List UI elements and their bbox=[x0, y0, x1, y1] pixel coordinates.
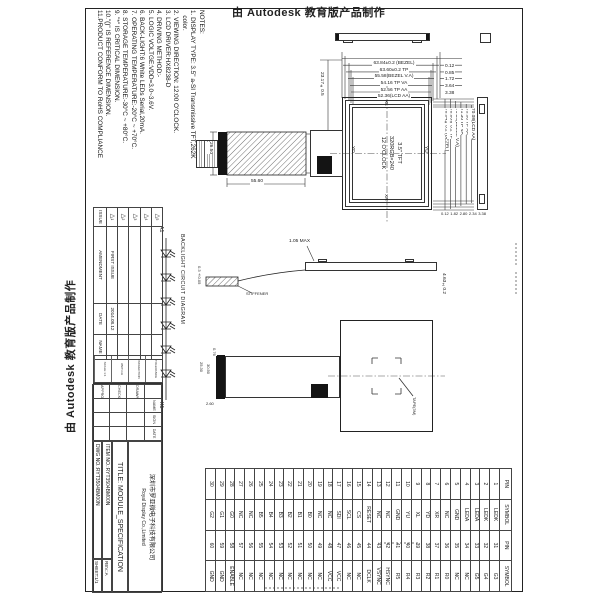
pin-table-cell: 32 bbox=[480, 530, 490, 561]
panel-clock-label: 12 O'CLOCK bbox=[379, 131, 387, 175]
top-edge-tab-right bbox=[412, 40, 422, 43]
h-dim-label: 52.36(LCD AA) bbox=[348, 84, 440, 91]
pin-table-row: 30G260GND bbox=[206, 469, 216, 592]
fpc-height-dim: 26.50 bbox=[206, 142, 213, 154]
rear-dim-3050: 30.50 bbox=[205, 364, 211, 374]
pin-table-row: 27NC57NC bbox=[235, 469, 245, 592]
h-dim-label: 63.60±0.2 TP bbox=[348, 58, 440, 65]
pin-table-cell: 26 bbox=[245, 469, 255, 500]
pin-table-row: 14RESET44DCLK bbox=[362, 469, 372, 592]
pin-table-row: 19NC49NC bbox=[313, 469, 323, 592]
width-dimension-labels: 63.84±0.2 (BEZEL)63.60±0.2 TP55.58(BEZEL… bbox=[348, 51, 440, 91]
pin-assignment-table: PINSYMBOLPINSYMBOL1LEDK31G32LEDK32G43LED… bbox=[205, 468, 512, 592]
pin-table-row: 12NC42HSYNC bbox=[382, 469, 392, 592]
amendment-header-cell: DATE bbox=[94, 304, 107, 335]
note-line: 2. VIEWING DIRECTION: 12:00 O'CLOCK. bbox=[171, 10, 180, 228]
pin-table-cell: 57 bbox=[235, 530, 245, 561]
pin-table-cell: LEDA bbox=[460, 499, 470, 530]
pin-table-cell: 21 bbox=[294, 469, 304, 500]
led-symbol bbox=[161, 370, 175, 377]
pin-table-cell: R0 bbox=[441, 561, 451, 592]
pin-table-cell: NC bbox=[372, 499, 382, 530]
pin-table-cell: 52 bbox=[284, 530, 294, 561]
pin-table-cell: 18 bbox=[323, 469, 333, 500]
note-line: color. bbox=[180, 10, 189, 228]
top-edge-tab-left bbox=[343, 40, 353, 43]
width-offset-labels: 0.120.851.723.643.38 bbox=[444, 54, 464, 87]
pin-table-cell: 53 bbox=[274, 530, 284, 561]
note-line: 5. LOGIC VOLTGE:VDD=3.0~3.6V. bbox=[146, 10, 155, 228]
micro-cell: TOLERANCE bbox=[145, 356, 162, 382]
sig-empty-cell bbox=[93, 413, 110, 427]
pin-table-cell: 9 bbox=[411, 469, 421, 500]
pin-table-cell: NC bbox=[441, 499, 451, 530]
note-line: 9. "*" IS CRITICAL DIMENSION. bbox=[112, 10, 121, 228]
pin-table-cell: 58 bbox=[225, 530, 235, 561]
pin-table-cell: NC bbox=[264, 561, 274, 592]
amendment-cell bbox=[118, 227, 129, 304]
item-no-value: RYT3504BM00N bbox=[104, 468, 110, 506]
touch-label-xr: XR bbox=[383, 194, 388, 201]
pin-table-header-cell: PIN bbox=[500, 530, 512, 561]
pin-table-cell: NC bbox=[353, 561, 363, 592]
dwg-no-label: DWG NO.: bbox=[94, 444, 100, 468]
note-line: 11.PRODUCT CONFORM TO RoHS COMPLIANCE bbox=[95, 10, 104, 228]
h-dim-label: 52.56 TP AA bbox=[348, 78, 440, 85]
h-offset-label: 3.64 bbox=[444, 74, 464, 81]
top-edge-endcap-right bbox=[426, 34, 429, 40]
pin-table-cell: SCL bbox=[343, 499, 353, 530]
amendment-cell: △3 bbox=[129, 208, 140, 227]
pin-table-row: 24B454NC bbox=[264, 469, 274, 592]
led-symbol bbox=[161, 298, 175, 305]
pin-table-cell: 24 bbox=[264, 469, 274, 500]
pin-table-cell: 12 bbox=[382, 469, 392, 500]
pin-table-cell: B4 bbox=[264, 499, 274, 530]
pin-table-cell: HSYNC bbox=[382, 561, 392, 592]
pin-table-cell: NC bbox=[294, 561, 304, 592]
pin-table-header-cell: SYMBOL bbox=[500, 561, 512, 592]
signature-table: NAMESIGNDATEDRAWNCHECKEDAPPROVED bbox=[92, 384, 162, 441]
pin-table-cell: NC bbox=[460, 561, 470, 592]
pin-table-cell: GND bbox=[215, 561, 225, 592]
rear-dim-076: 0.76 bbox=[211, 348, 217, 356]
company-name-en: Royal Display Co.,Limited bbox=[139, 442, 146, 592]
pin-table-cell: R4 bbox=[402, 561, 412, 592]
right-edge-slot-top bbox=[479, 104, 485, 114]
led-symbol bbox=[161, 250, 175, 257]
pin-table-cell: B0 bbox=[304, 499, 314, 530]
pin-table-cell: G5 bbox=[470, 561, 480, 592]
pin-table-cell: 7 bbox=[431, 469, 441, 500]
pin-table-cell: 27 bbox=[235, 469, 245, 500]
v-offset-label: 2.34 bbox=[469, 212, 477, 216]
v-offset-label: 0.12 bbox=[441, 212, 449, 216]
pin-table-cell: G2 bbox=[206, 499, 216, 530]
sig-row: CHECKED bbox=[110, 385, 127, 441]
pin-table-cell: YD bbox=[421, 499, 431, 530]
pin-table-row: 22B252NC bbox=[284, 469, 294, 592]
pin-table-cell: B3 bbox=[274, 499, 284, 530]
pin-table-cell: 34 bbox=[460, 530, 470, 561]
pin-table-cell: VSYNC bbox=[372, 561, 382, 592]
pin-table-cell: XL bbox=[411, 499, 421, 530]
sig-header-cell: SIGN bbox=[144, 413, 161, 427]
right-edge-slot-bottom bbox=[479, 194, 485, 204]
led-symbol bbox=[161, 322, 175, 329]
pin-table-cell: 23 bbox=[274, 469, 284, 500]
pin-table-cell: R5 bbox=[392, 561, 402, 592]
h-dim-text: 52.36(LCD AA) bbox=[377, 94, 411, 99]
rear-fpc-connector bbox=[216, 355, 225, 399]
pin-table-cell: NC bbox=[235, 561, 245, 592]
pin-table-cell: VCC bbox=[333, 561, 343, 592]
pin-table-row: 11GND41R5 bbox=[392, 469, 402, 592]
amendment-row: △4 bbox=[140, 208, 151, 360]
pin-table-cell: NC bbox=[284, 561, 294, 592]
h-offset-label: 1.72 bbox=[444, 67, 464, 74]
pin-table-cell: R1 bbox=[431, 561, 441, 592]
pin-table-cell: G0 bbox=[225, 499, 235, 530]
title-label: TITLE: bbox=[116, 462, 123, 483]
pin-table-cell: SDI bbox=[333, 499, 343, 530]
dwg-no-value: RYT3504BM00N bbox=[94, 468, 100, 506]
pin-table-cell: ENABLE bbox=[225, 561, 235, 592]
touch-label-yd: YD bbox=[350, 146, 355, 153]
pin-table-header-row: PINSYMBOLPINSYMBOL bbox=[500, 469, 512, 592]
amendment-cell bbox=[129, 304, 140, 335]
pin-table-cell: 14 bbox=[362, 469, 372, 500]
pin-table-cell: NC bbox=[304, 561, 314, 592]
h-offset-label: 3.38 bbox=[444, 81, 464, 88]
pin-table-cell: 51 bbox=[294, 530, 304, 561]
amendment-header-cell: ISSUE bbox=[94, 208, 107, 227]
pin-table-cell: 22 bbox=[284, 469, 294, 500]
pin-table-cell: 46 bbox=[343, 530, 353, 561]
pin-table-cell: NC bbox=[235, 499, 245, 530]
backlight-diagram-title: BACKLIGHT CIRCUIT DIAGRAM bbox=[179, 234, 185, 324]
note-line: NOTES: bbox=[197, 10, 206, 228]
pin-table-cell: NC bbox=[451, 561, 461, 592]
v-offset-label: 1.82 bbox=[450, 212, 458, 216]
amendment-cell bbox=[151, 304, 162, 335]
v-dim-label: 70.08(LCD AA) bbox=[468, 108, 475, 140]
pin-table-cell: NC bbox=[323, 499, 333, 530]
stiffener-label: STIFFENER bbox=[246, 292, 268, 296]
pin-table-cell: RESET bbox=[362, 499, 372, 530]
pin-table-cell: 20 bbox=[304, 469, 314, 500]
pin-table-row: 25B555NC bbox=[255, 469, 265, 592]
sig-role-cell: DRAWN bbox=[127, 385, 144, 399]
corner-detail-view bbox=[480, 33, 491, 43]
amendment-cell: △1 bbox=[107, 208, 118, 227]
pin-table-cell: 25 bbox=[255, 469, 265, 500]
rear-dim-2530: 25.30 bbox=[198, 362, 204, 372]
pin-table-cell: 17 bbox=[333, 469, 343, 500]
pin-table-cell: 54 bbox=[264, 530, 274, 561]
fpc-fold-connector bbox=[317, 156, 332, 174]
panel-label: 3.5" TFT 320RGB×240 12 O'CLOCK bbox=[373, 131, 403, 175]
sig-empty-cell bbox=[93, 427, 110, 441]
pin-table-cell: 38 bbox=[421, 530, 431, 561]
pin-table-cell: B2 bbox=[284, 499, 294, 530]
pin-table-row: 1LEDK31G3 bbox=[490, 469, 500, 592]
pin-table-cell: 16 bbox=[343, 469, 353, 500]
pin-table-cell: 37 bbox=[431, 530, 441, 561]
note-line: 7. OPERATING TEMPERATURE:-20°C ~ +70°C. bbox=[129, 10, 138, 228]
pin-table-cell: 60 bbox=[206, 530, 216, 561]
sig-header-cell: NAME bbox=[144, 399, 161, 413]
pin-table-cell: 39 bbox=[411, 530, 421, 561]
sheet-value: 1/1 bbox=[94, 577, 99, 583]
amendment-cell: △2 bbox=[118, 208, 129, 227]
h-dim-label: 63.84±0.2 (BEZEL) bbox=[348, 51, 440, 58]
bump-height-dim: 1.05 MAX bbox=[288, 240, 311, 245]
pin-table-cell: NC bbox=[343, 561, 353, 592]
pin-table-cell: 43 bbox=[372, 530, 382, 561]
pin-table-cell: GND bbox=[451, 499, 461, 530]
pin-table-cell: R2 bbox=[421, 561, 431, 592]
bottom-side-view bbox=[305, 262, 437, 271]
micro-cell: UNIT:mm bbox=[111, 356, 128, 382]
pin-table-cell: B1 bbox=[294, 499, 304, 530]
amendment-cell bbox=[140, 227, 151, 304]
bottom-side-bump-right bbox=[405, 259, 414, 262]
sig-empty-cell bbox=[110, 399, 127, 413]
pin-table-cell: 30 bbox=[206, 469, 216, 500]
pin-table-cell: CS bbox=[353, 499, 363, 530]
rev-value: A bbox=[104, 573, 109, 576]
pin-table-cell: LEDA bbox=[470, 499, 480, 530]
pin-table-cell: DCLK bbox=[362, 561, 372, 592]
amendment-row: △3 bbox=[129, 208, 140, 360]
pin-table-cell: 47 bbox=[333, 530, 343, 561]
pin-table-row: 4LEDA34NC bbox=[460, 469, 470, 592]
pin-table-header-cell: PIN bbox=[500, 469, 512, 500]
pin-table-cell: 59 bbox=[215, 530, 225, 561]
pin-table-cell: NC bbox=[382, 499, 392, 530]
pin-table-cell: 28 bbox=[225, 469, 235, 500]
pin-table-cell: 6 bbox=[441, 469, 451, 500]
amendment-cell bbox=[118, 304, 129, 335]
pin-table-cell: 35 bbox=[451, 530, 461, 561]
amendment-cell: △5 bbox=[151, 208, 162, 227]
height-offset-labels: 0.121.822.802.343.38 bbox=[441, 212, 486, 216]
pin-table-cell: R3 bbox=[411, 561, 421, 592]
pin-table-cell: 45 bbox=[353, 530, 363, 561]
amendment-block: △5△4△3△2△1FIRST ISSUE2014.08.12ISSUEAMEN… bbox=[93, 207, 163, 383]
notes-text: NOTES:1. DISPLAY TYPE: 3.5" a-SI Transmi… bbox=[95, 10, 206, 228]
v-offset-label: 3.38 bbox=[478, 212, 486, 216]
pin-table-row: 17SDI47VCC bbox=[333, 469, 343, 592]
h-offset-text: 3.38 bbox=[444, 91, 455, 96]
pin-table-cell: G4 bbox=[480, 561, 490, 592]
pin-table-cell: 19 bbox=[313, 469, 323, 500]
pin-table-row: 5GND35NC bbox=[451, 469, 461, 592]
pin-table-row: 20B050NC bbox=[304, 469, 314, 592]
pin-table-row: 15CS45NC bbox=[353, 469, 363, 592]
rear-dim-260: 2.60 bbox=[206, 402, 214, 406]
fpc-thickness-dim: 0.3±0.05 bbox=[196, 266, 202, 284]
engineering-drawing-sheet: 由 Autodesk 教育版产品制作 由 Autodesk 教育版产品制作 bbox=[0, 0, 600, 600]
top-edge-endcap-left bbox=[336, 34, 339, 40]
led-symbol bbox=[161, 346, 175, 353]
pin-table-cell: NC bbox=[313, 499, 323, 530]
h-offset-label: 0.85 bbox=[444, 61, 464, 68]
pin-table-cell: 48 bbox=[323, 530, 333, 561]
v-offset-label: 2.80 bbox=[460, 212, 468, 216]
rear-fpc-fold bbox=[311, 384, 328, 398]
fpc-end-connector bbox=[218, 132, 227, 175]
company-name-cn: 深圳市罗亚微电子科技有限公司 bbox=[146, 442, 156, 592]
touch-label-xl: XL bbox=[383, 100, 388, 106]
h-dim-label: 55.58(BEZEL V.A) bbox=[348, 64, 440, 71]
pin-table-cell: GND bbox=[392, 499, 402, 530]
sig-empty-cell bbox=[93, 399, 110, 413]
pin-table-cell: B5 bbox=[255, 499, 265, 530]
touch-label-yu: YU bbox=[423, 146, 428, 153]
pin-table-cell: 3 bbox=[470, 469, 480, 500]
sig-row: DRAWN bbox=[127, 385, 144, 441]
bottom-side-bump-left bbox=[318, 259, 327, 262]
pin-table-row: 7XR37R1 bbox=[431, 469, 441, 592]
sig-header-row: NAMESIGNDATE bbox=[144, 385, 161, 441]
pin-table-cell: LEDK bbox=[480, 499, 490, 530]
pin-table-cell: NC bbox=[245, 499, 255, 530]
pin-table-cell: 8 bbox=[421, 469, 431, 500]
rear-note: TAPE(3M) bbox=[412, 397, 416, 415]
note-line: 6. BACK-LIGHT:6 White LEDs Serial,20mA. bbox=[137, 10, 146, 228]
sig-empty-cell bbox=[110, 413, 127, 427]
pin-table-row: 26NC56NC bbox=[245, 469, 255, 592]
tolerance-micro-cells: TOLERANCEPROJECTIONUNIT:mmSCALE 1:1 bbox=[93, 355, 163, 383]
pin-table-cell: 49 bbox=[313, 530, 323, 561]
pin-table-cell: NC bbox=[255, 561, 265, 592]
fpc-width-dim: 55.60 bbox=[250, 180, 264, 185]
sig-empty-cell bbox=[127, 413, 144, 427]
pin-table-row: 29G159GND bbox=[215, 469, 225, 592]
amendment-row: △1FIRST ISSUE2014.08.12 bbox=[107, 208, 118, 360]
sig-empty-cell bbox=[127, 427, 144, 441]
note-line: 10."()" IS REFERENCE DIMENSION. bbox=[103, 10, 112, 228]
sig-role-cell: CHECKED bbox=[110, 385, 127, 399]
pin-table-row: 6NC36R0 bbox=[441, 469, 451, 592]
thickness-dim: 4.63±0.2 bbox=[439, 273, 446, 294]
pin-table-cell: G1 bbox=[215, 499, 225, 530]
drawing-title: MODULE_SPECIFICATION bbox=[116, 485, 123, 572]
panel-size-label: 3.5" TFT bbox=[395, 131, 403, 175]
pin-table-cell: GND bbox=[206, 561, 216, 592]
micro-cell: SCALE 1:1 bbox=[94, 356, 111, 382]
pin-table-cell: 36 bbox=[441, 530, 451, 561]
h-dim-label: 54.16 TP VA bbox=[348, 71, 440, 78]
pin-table-cell: NC bbox=[245, 561, 255, 592]
note-line: 4. DRIVING METHOD:- bbox=[154, 10, 163, 228]
pin-table-cell: 2 bbox=[480, 469, 490, 500]
sig-row: APPROVED bbox=[93, 385, 110, 441]
item-no-label: ITEM NO.: bbox=[104, 444, 110, 468]
pin-table-cell: 5 bbox=[451, 469, 461, 500]
title-block: NAMESIGNDATEDRAWNCHECKEDAPPROVED 深圳市罗亚微电… bbox=[93, 383, 163, 592]
pin-table-cell: NC bbox=[313, 561, 323, 592]
pin-table-row: 9XL39R3 bbox=[411, 469, 421, 592]
note-line: 8. STORAGE TEMPERATURE:-30°C ~ +80°C. bbox=[120, 10, 129, 228]
pin-table-row: 28G058ENABLE bbox=[225, 469, 235, 592]
pin-table-cell: 29 bbox=[215, 469, 225, 500]
sheet-label: SHEET: bbox=[94, 561, 99, 577]
sig-empty-cell bbox=[110, 427, 127, 441]
h-offset-label: 0.12 bbox=[444, 54, 464, 61]
fpc-offset-dim: 23.17±0.5 bbox=[317, 72, 324, 96]
amendment-cell: FIRST ISSUE bbox=[107, 227, 118, 304]
sig-empty-cell bbox=[127, 399, 144, 413]
amendment-header-cell: AMENDMENT bbox=[94, 227, 107, 304]
pin-table-cell: 13 bbox=[372, 469, 382, 500]
pin-table-cell: VCC bbox=[323, 561, 333, 592]
pin-table-cell: 42 bbox=[382, 530, 392, 561]
pin-table-row: 16SCL46NC bbox=[343, 469, 353, 592]
amendment-cell bbox=[129, 227, 140, 304]
pin-table-header-cell: SYMBOL bbox=[500, 499, 512, 530]
sig-role-cell: APPROVED bbox=[93, 385, 110, 399]
pin-table-cell: 33 bbox=[470, 530, 480, 561]
pin-table-cell: G3 bbox=[490, 561, 500, 592]
pin-table-block: PINSYMBOLPINSYMBOL1LEDK31G32LEDK32G43LED… bbox=[237, 468, 512, 592]
rear-view bbox=[340, 320, 433, 432]
pin-table-cell: 41 bbox=[392, 530, 402, 561]
amendment-row: △5 bbox=[151, 208, 162, 360]
pin-table-cell: 44 bbox=[362, 530, 372, 561]
pin-table-row: 10YU40R4 bbox=[402, 469, 412, 592]
pin-table-cell: 56 bbox=[245, 530, 255, 561]
pin-table-cell: 40 bbox=[402, 530, 412, 561]
pin-table-cell: NC bbox=[274, 561, 284, 592]
amendment-cell bbox=[140, 304, 151, 335]
pin-table-cell: YU bbox=[402, 499, 412, 530]
note-line: 3. LCD DRIVER:HX8238-D bbox=[163, 10, 172, 228]
micro-cell: PROJECTION bbox=[128, 356, 145, 382]
amendment-cell: △4 bbox=[140, 208, 151, 227]
pin-table-cell: LEDK bbox=[490, 499, 500, 530]
rev-label: REV.: bbox=[104, 561, 109, 573]
amendment-header-row: ISSUEAMENDMENTDATENAME bbox=[94, 208, 107, 360]
pin-table-row: 18NC48VCC bbox=[323, 469, 333, 592]
pin-table-cell: XR bbox=[431, 499, 441, 530]
pin-table-row: 23B353NC bbox=[274, 469, 284, 592]
pin-table-cell: 1 bbox=[490, 469, 500, 500]
pin-table-cell: 10 bbox=[402, 469, 412, 500]
pin-table-cell: 4 bbox=[460, 469, 470, 500]
pin-table-cell: 15 bbox=[353, 469, 363, 500]
pin-table-cell: 11 bbox=[392, 469, 402, 500]
note-line: 1. DISPLAY TYPE: 3.5" a-SI Transmissive … bbox=[188, 10, 197, 228]
amendment-table: △5△4△3△2△1FIRST ISSUE2014.08.12ISSUEAMEN… bbox=[93, 207, 163, 360]
pin-table-cell: 50 bbox=[304, 530, 314, 561]
pin-table-row: 2LEDK32G4 bbox=[480, 469, 490, 592]
pin-table-row: 8YD38R2 bbox=[421, 469, 431, 592]
notes-block: NOTES:1. DISPLAY TYPE: 3.5" a-SI Transmi… bbox=[93, 10, 205, 228]
pin-table-cell: 31 bbox=[490, 530, 500, 561]
panel-resolution-label: 320RGB×240 bbox=[387, 131, 395, 175]
led-symbol bbox=[161, 274, 175, 281]
amendment-cell: 2014.08.12 bbox=[107, 304, 118, 335]
pin-table-row: 3LEDA33G5 bbox=[470, 469, 480, 592]
pin-table-row: 21B151NC bbox=[294, 469, 304, 592]
pin-table-cell: 55 bbox=[255, 530, 265, 561]
sig-corner-cell bbox=[144, 385, 161, 399]
sig-header-cell: DATE bbox=[144, 427, 161, 441]
pin-table-row: 13NC43VSYNC bbox=[372, 469, 382, 592]
